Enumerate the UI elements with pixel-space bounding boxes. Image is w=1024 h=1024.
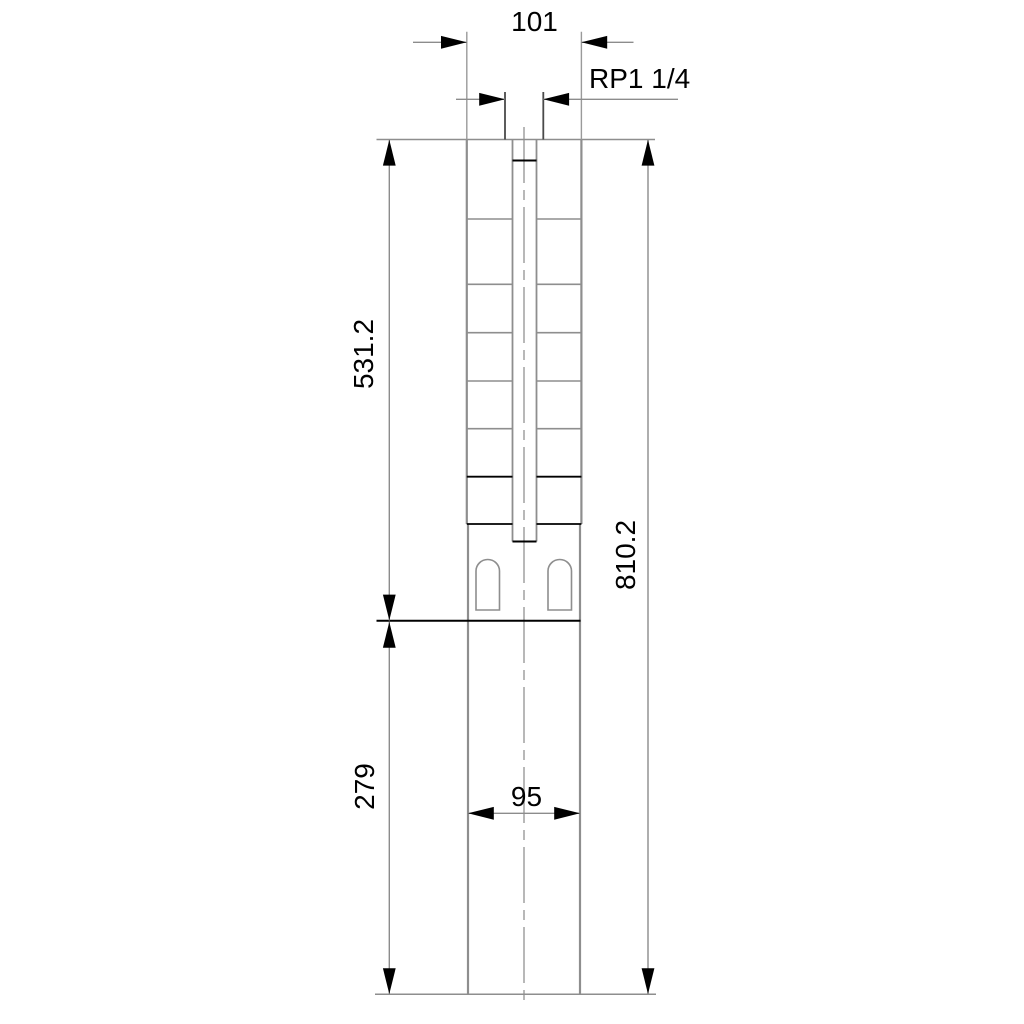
arrowhead-down-icon [383,968,396,994]
dim-279-label: 279 [349,763,380,810]
arrowhead-down-icon [383,595,396,621]
dim-rp-label: RP1 1/4 [589,63,690,94]
dimension-531-2: 531.2 [348,140,396,621]
dimension-rp1-1-4: RP1 1/4 [456,63,690,140]
dimension-95: 95 [468,781,580,820]
suction-slot-right [548,560,572,611]
arrowhead-up-icon [383,140,396,166]
arrowhead-up-icon [642,140,655,166]
dimension-810-2: 810.2 [610,140,654,994]
dim-101-label: 101 [511,6,558,37]
arrowhead-left-icon [543,93,569,106]
dim-101-extension-lines [467,32,582,140]
arrowhead-right-icon [441,36,467,49]
pump-body-accent-lines [377,161,582,621]
pump-dimension-drawing: 101 RP1 1/4 531.2 279 810.2 95 [0,0,1024,1024]
suction-slot-left [476,560,500,611]
dimension-279: 279 [349,622,396,994]
arrowhead-left-icon [468,807,494,820]
arrowhead-up-icon [383,622,396,648]
dim-95-label: 95 [511,781,542,812]
drawing-canvas: 101 RP1 1/4 531.2 279 810.2 95 [0,0,1024,1024]
arrowhead-right-icon [479,93,505,106]
arrowhead-down-icon [642,968,655,994]
arrowhead-right-icon [554,807,580,820]
dim-531-label: 531.2 [348,319,379,389]
arrowhead-left-icon [581,36,607,49]
dim-810-label: 810.2 [610,520,641,590]
